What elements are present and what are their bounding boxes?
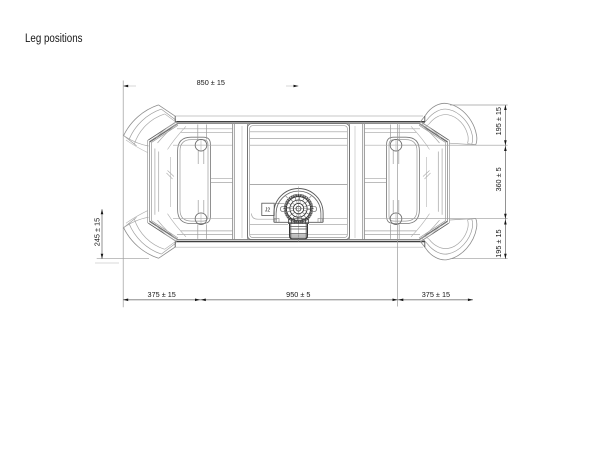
svg-text:245 ± 15: 245 ± 15 [92, 218, 101, 246]
svg-text:375 ± 15: 375 ± 15 [422, 290, 450, 299]
svg-text:Leg positions: Leg positions [25, 31, 83, 45]
svg-text:J2: J2 [265, 208, 271, 214]
svg-text:950 ± 5: 950 ± 5 [286, 290, 310, 299]
svg-text:850 ± 15: 850 ± 15 [197, 78, 225, 87]
svg-text:360 ± 5: 360 ± 5 [494, 167, 503, 191]
svg-text:195 ± 15: 195 ± 15 [494, 107, 503, 135]
svg-text:195 ± 15: 195 ± 15 [494, 229, 503, 257]
svg-text:375 ± 15: 375 ± 15 [148, 290, 176, 299]
